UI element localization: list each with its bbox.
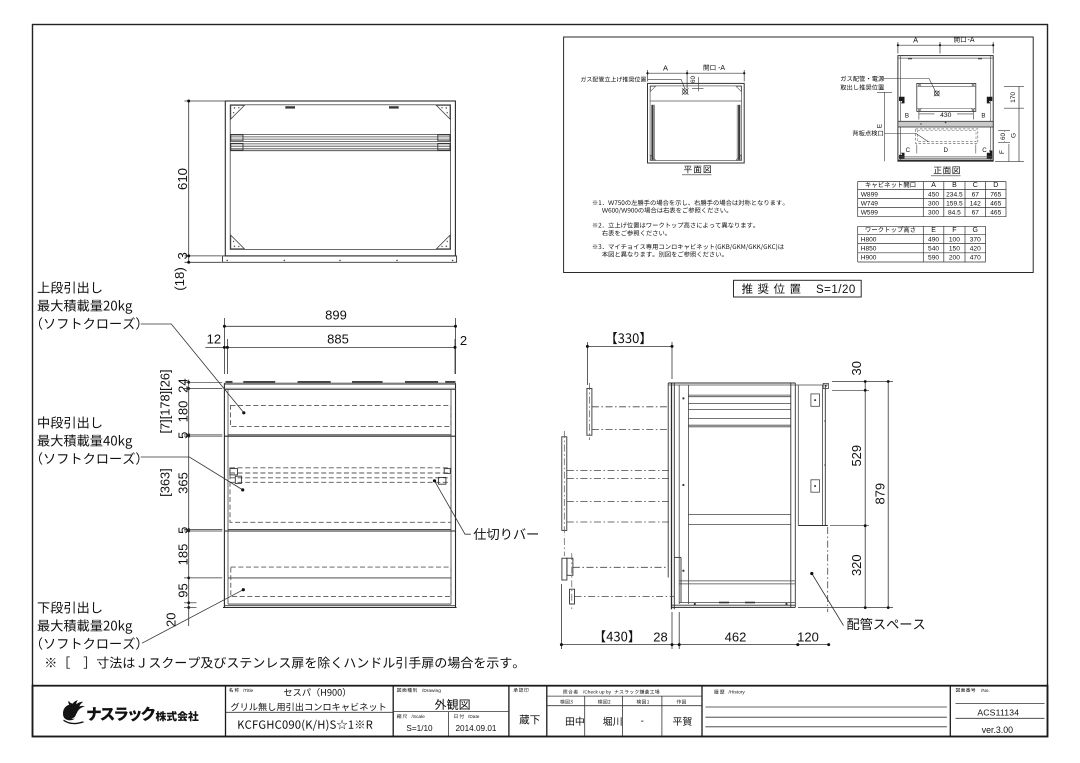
svg-text:67: 67: [972, 191, 980, 198]
svg-text:F: F: [999, 150, 1006, 154]
svg-text:490: 490: [928, 236, 939, 243]
svg-text:200: 200: [949, 255, 960, 262]
svg-text:G: G: [973, 227, 978, 234]
svg-text:30: 30: [849, 361, 864, 375]
svg-text:[7][178][26]: [7][178][26]: [158, 369, 173, 433]
svg-text:A: A: [931, 182, 936, 189]
svg-text:C: C: [973, 182, 978, 189]
svg-text:100: 100: [949, 236, 960, 243]
svg-text:180: 180: [175, 401, 190, 423]
svg-text:465: 465: [990, 209, 1001, 216]
svg-text:590: 590: [928, 255, 939, 262]
svg-text:540: 540: [928, 246, 939, 253]
svg-text:300: 300: [928, 209, 939, 216]
svg-text:60: 60: [1000, 133, 1007, 140]
svg-text:B: B: [952, 182, 957, 189]
svg-text:G: G: [1010, 133, 1017, 138]
svg-text:/Scale: /Scale: [412, 714, 426, 720]
svg-text:D: D: [943, 147, 948, 154]
svg-text:300: 300: [928, 200, 939, 207]
svg-text:S=1/10: S=1/10: [406, 724, 433, 733]
svg-text:365: 365: [175, 472, 190, 494]
svg-text:185: 185: [175, 544, 190, 566]
svg-text:H850: H850: [861, 246, 877, 253]
svg-text:879: 879: [873, 483, 888, 505]
svg-text:142: 142: [970, 200, 981, 207]
svg-text:ver.3.00: ver.3.00: [982, 725, 1013, 735]
svg-text:W749: W749: [861, 200, 879, 207]
svg-text:420: 420: [970, 246, 981, 253]
svg-text:765: 765: [990, 191, 1001, 198]
svg-text:899: 899: [325, 308, 347, 323]
svg-text:B: B: [905, 112, 909, 119]
svg-text:465: 465: [990, 200, 1001, 207]
svg-text:5: 5: [175, 432, 190, 439]
svg-text:[363]: [363]: [158, 468, 173, 496]
svg-text:-A: -A: [968, 37, 975, 44]
svg-text:150: 150: [949, 246, 960, 253]
svg-text:B: B: [981, 112, 985, 119]
svg-text:H800: H800: [861, 236, 877, 243]
svg-text:67: 67: [972, 209, 980, 216]
svg-text:A: A: [913, 35, 918, 44]
svg-text:450: 450: [928, 191, 939, 198]
svg-text:5: 5: [175, 527, 190, 534]
svg-text:84.5: 84.5: [948, 209, 961, 216]
svg-text:S=1/20: S=1/20: [816, 284, 856, 296]
svg-text:W899: W899: [861, 191, 879, 198]
svg-text:D: D: [993, 182, 998, 189]
svg-text:C: C: [982, 147, 987, 154]
svg-text:E: E: [931, 227, 936, 234]
svg-text:120: 120: [797, 629, 819, 644]
svg-text:/History: /History: [729, 690, 746, 696]
svg-text:159.5: 159.5: [946, 200, 963, 207]
svg-text:ACS11134: ACS11134: [977, 708, 1019, 718]
svg-text:370: 370: [970, 236, 981, 243]
svg-text:2014.09.01: 2014.09.01: [456, 724, 497, 733]
svg-text:430: 430: [940, 112, 952, 119]
svg-text:234.5: 234.5: [946, 191, 963, 198]
svg-text:3: 3: [175, 252, 190, 259]
svg-text:H900: H900: [861, 255, 877, 262]
svg-text:12: 12: [207, 332, 221, 347]
svg-text:95: 95: [175, 583, 190, 597]
svg-text:(18): (18): [172, 267, 187, 290]
svg-text:320: 320: [849, 554, 864, 576]
svg-text:F: F: [952, 227, 956, 234]
svg-text:470: 470: [970, 255, 981, 262]
svg-text:2: 2: [460, 333, 467, 348]
svg-text:24: 24: [175, 378, 190, 392]
svg-text:885: 885: [327, 332, 349, 347]
svg-text:/No.: /No.: [981, 688, 990, 694]
svg-text:/Title: /Title: [243, 688, 254, 694]
svg-text:-: -: [641, 716, 644, 727]
svg-text:529: 529: [849, 445, 864, 467]
svg-text:28: 28: [653, 629, 667, 644]
svg-text:/Date: /Date: [468, 714, 480, 720]
svg-text:A: A: [663, 63, 668, 72]
svg-text:170: 170: [1010, 92, 1017, 103]
svg-text:60: 60: [690, 76, 697, 83]
svg-text:W599: W599: [861, 209, 879, 216]
svg-text:C: C: [906, 147, 911, 154]
svg-text:-A: -A: [718, 65, 725, 72]
svg-text:/Check up by: /Check up by: [583, 690, 612, 696]
svg-text:/Drawing: /Drawing: [422, 688, 441, 694]
svg-text:610: 610: [175, 168, 190, 190]
svg-text:462: 462: [725, 629, 747, 644]
svg-text:E: E: [877, 124, 884, 128]
